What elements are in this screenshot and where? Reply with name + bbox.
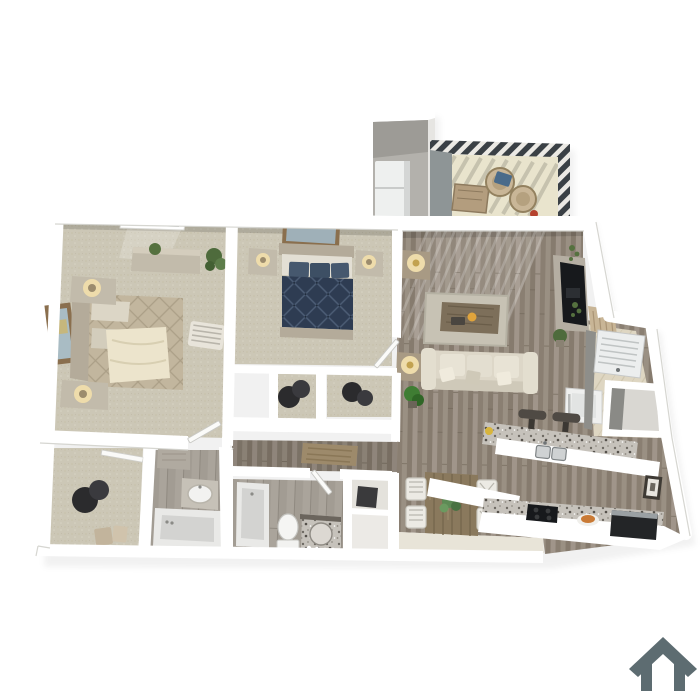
- coffee-table: [440, 302, 500, 334]
- tub: [236, 482, 269, 548]
- tv-console: [553, 255, 589, 332]
- linen-closet-bottom-floor: [349, 514, 389, 551]
- wall-bath2-top-left: [232, 466, 310, 478]
- accent-chaise: [187, 321, 225, 351]
- wall-closet-divider-2: [316, 373, 326, 420]
- toilet: [277, 514, 299, 552]
- round-granite-vanity: [300, 514, 341, 553]
- house-icon-left-post: [641, 662, 652, 691]
- laundry-closet: [594, 330, 645, 378]
- nightstand-lower: [60, 380, 108, 410]
- hamper-2: [292, 380, 310, 398]
- vanity-oval-sink: [181, 478, 218, 510]
- framed-art: [643, 475, 663, 500]
- storage-closet-back-wall: [373, 120, 428, 158]
- hamper-4: [357, 390, 373, 406]
- water-heater: [375, 161, 410, 218]
- nightstand-left: [248, 248, 277, 276]
- food-plate: [581, 515, 595, 523]
- house-icon-right-post: [674, 662, 685, 691]
- bed-navy: [279, 243, 354, 340]
- storage-closet: [365, 111, 435, 227]
- nightstand-right: [355, 250, 383, 277]
- candle: [468, 313, 477, 322]
- wicker-chair-2: [510, 186, 536, 212]
- armrest-left: [421, 348, 436, 390]
- hanging-coats: [356, 486, 378, 508]
- chair-2: [406, 506, 426, 528]
- patio-table: [452, 184, 489, 213]
- armrest-right: [523, 352, 538, 394]
- garden-tub: [153, 508, 221, 549]
- balcony-side-wall: [430, 150, 452, 227]
- cooktop: [526, 504, 558, 523]
- linen-closets: [356, 486, 378, 508]
- wall-bath-divider: [219, 447, 233, 556]
- wall-cabinet: [157, 448, 190, 470]
- nightstand-upper: [70, 276, 116, 305]
- storage-box-1: [94, 527, 113, 546]
- wall-closets-dining: [388, 472, 399, 557]
- storage-box-2: [112, 525, 128, 542]
- house-icon: [629, 637, 697, 691]
- bed-master: [70, 294, 183, 390]
- wall-closet-divider-1: [269, 372, 278, 421]
- sofa: [421, 348, 538, 394]
- hallway: [301, 443, 358, 466]
- chair-1: [406, 478, 426, 500]
- cream-throw: [106, 327, 170, 383]
- navy-pillows: [289, 262, 350, 279]
- floor-plan-canvas: [0, 0, 700, 700]
- house-icon-roof: [629, 637, 697, 677]
- dishwasher: [610, 510, 658, 540]
- hamper-6: [89, 480, 109, 500]
- navy-quilt: [282, 276, 353, 330]
- tray: [451, 317, 465, 325]
- wall-top-living: [398, 216, 591, 231]
- floor-plan-rendering: [0, 0, 700, 700]
- dresser-plant: [149, 243, 161, 255]
- fruit-bowl: [485, 427, 493, 435]
- side-table-upper: [401, 250, 430, 280]
